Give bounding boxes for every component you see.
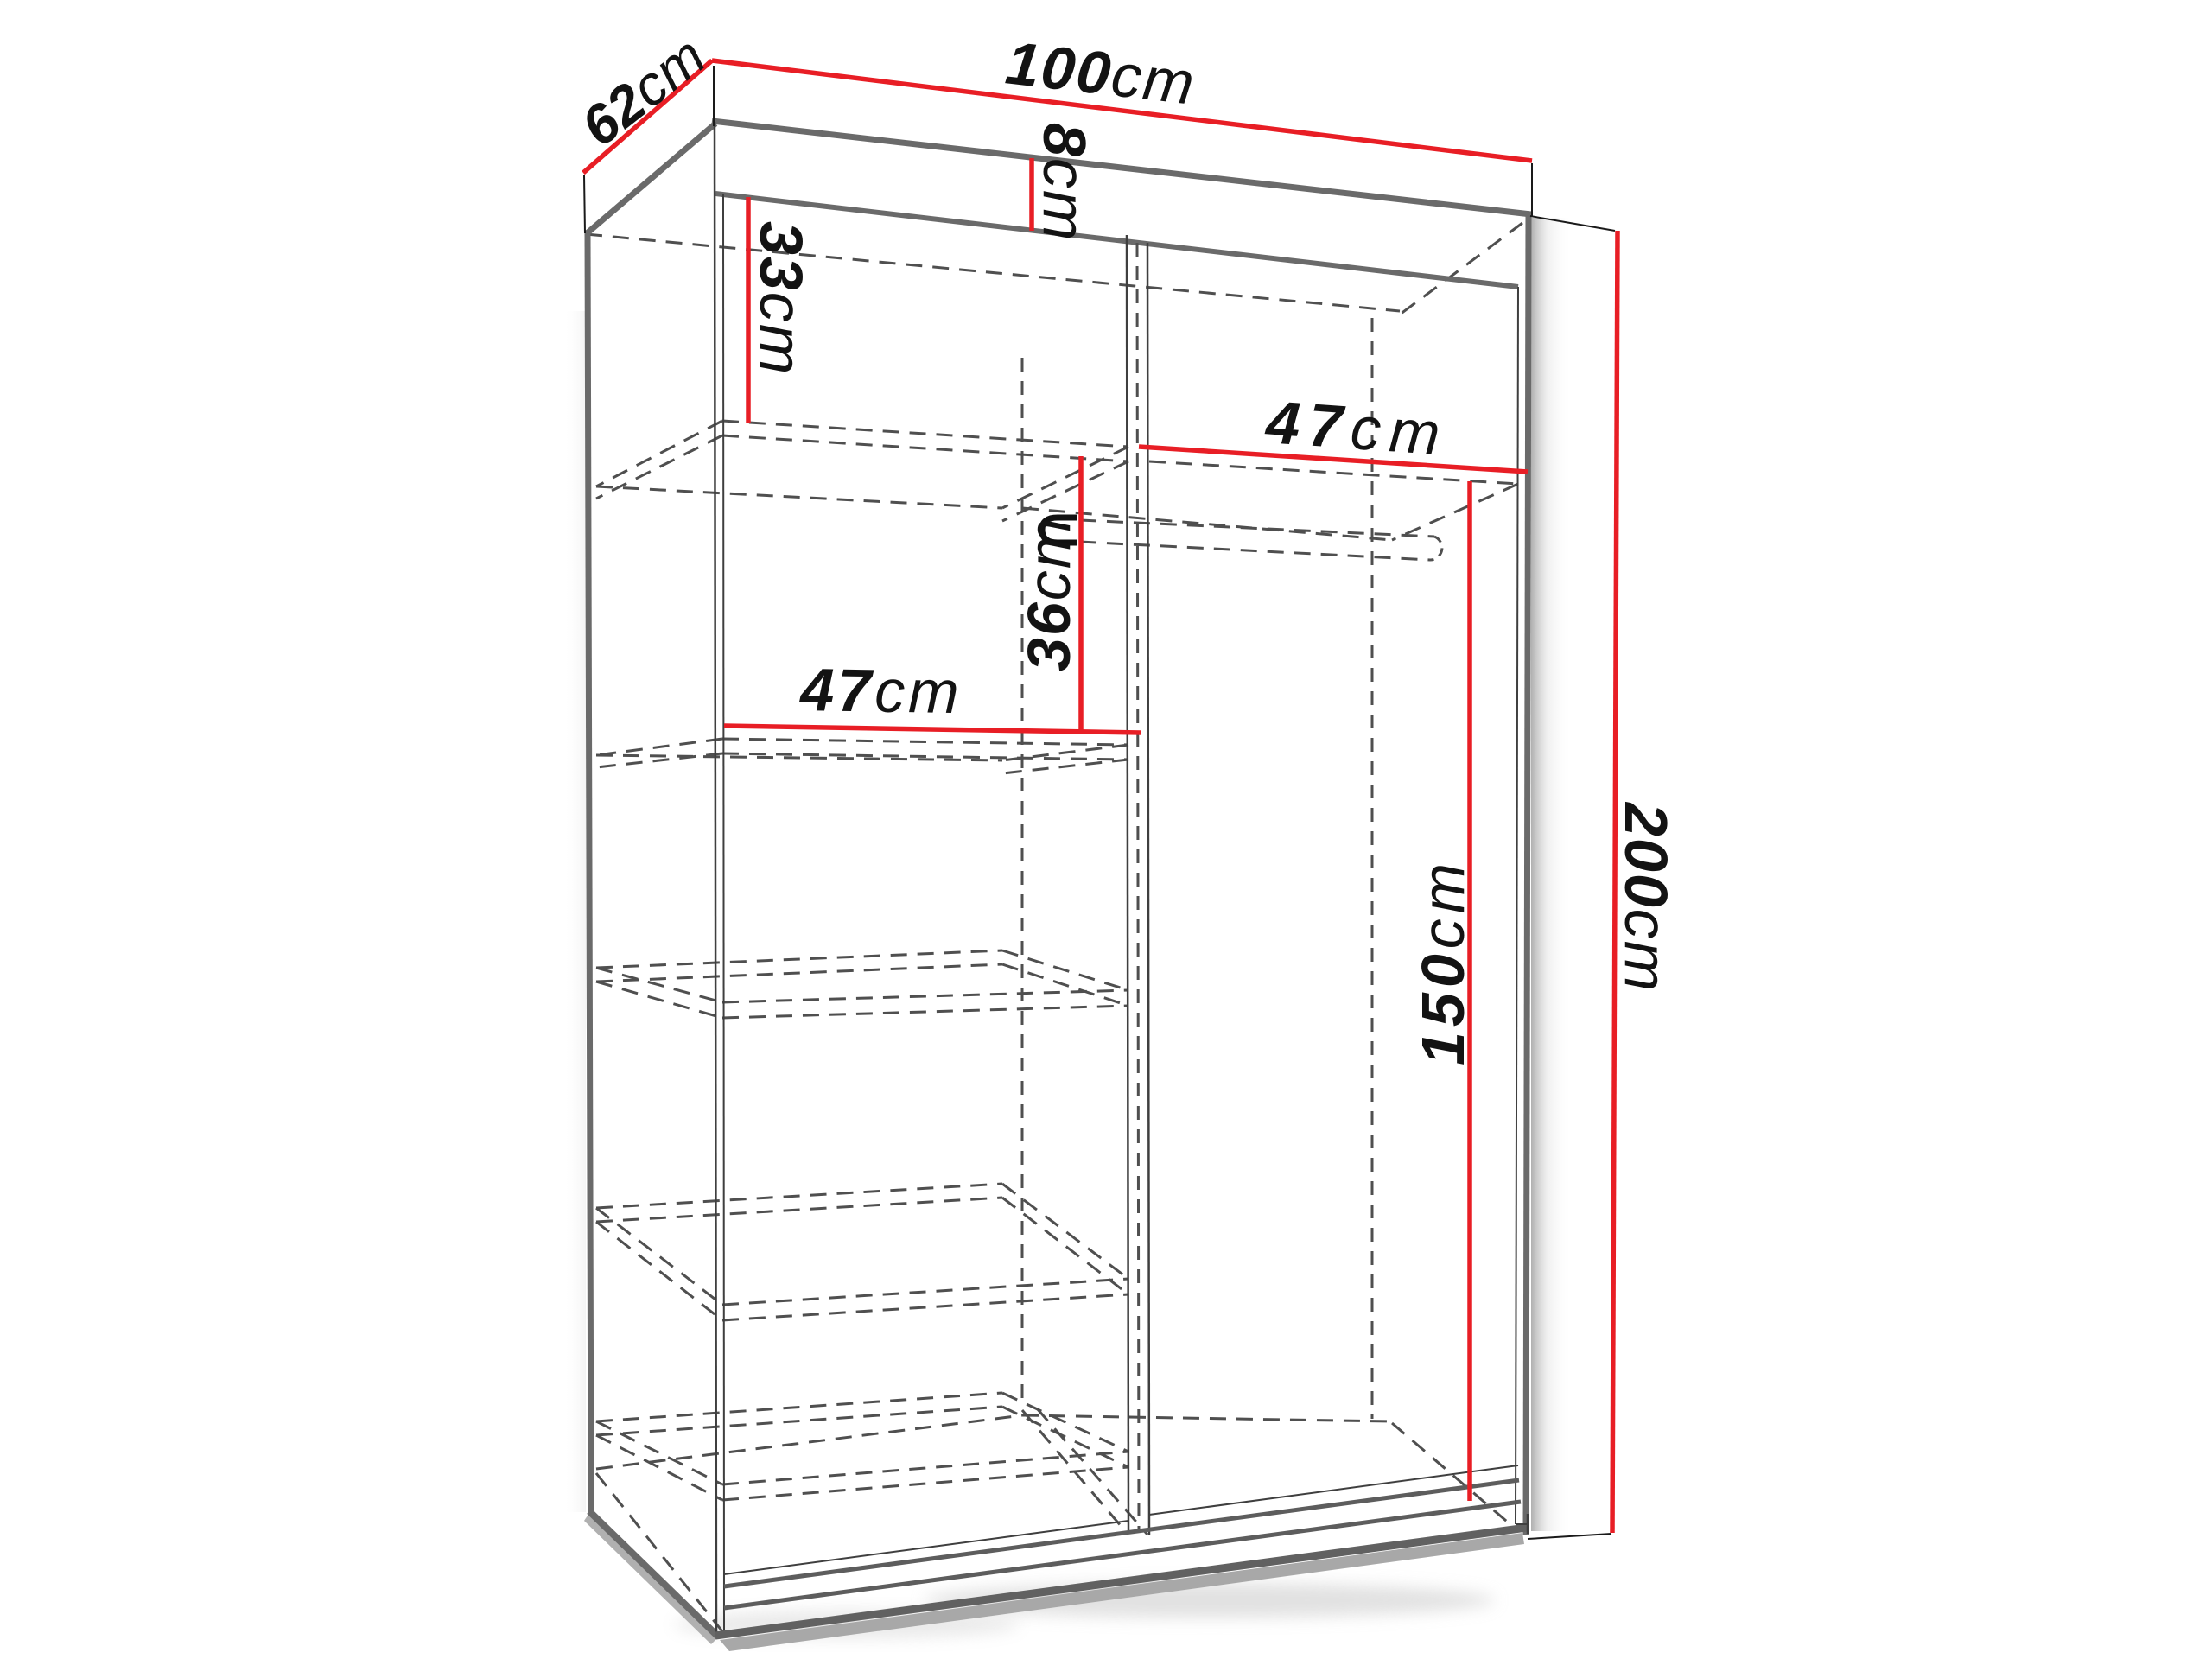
svg-text:36cm: 36cm <box>1015 517 1083 671</box>
svg-text:47cm: 47cm <box>798 656 963 726</box>
svg-text:47cm: 47cm <box>1262 388 1451 468</box>
svg-text:200cm: 200cm <box>1612 801 1680 993</box>
svg-text:33cm: 33cm <box>747 221 815 376</box>
svg-text:8cm: 8cm <box>1031 123 1098 242</box>
svg-text:150cm: 150cm <box>1409 858 1477 1065</box>
